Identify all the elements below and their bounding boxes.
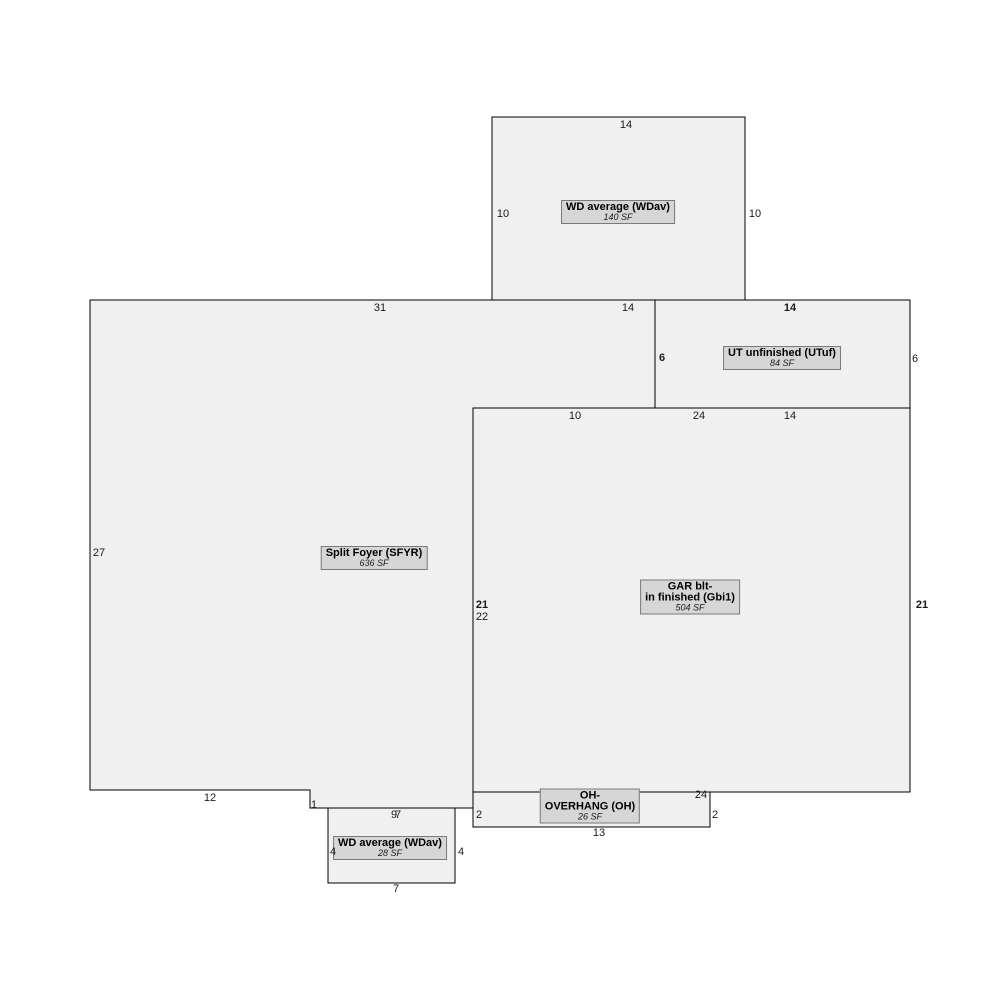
dim-wd-top-top: 14	[620, 119, 632, 131]
dim-gar-top-total: 24	[693, 410, 705, 422]
floorplan-sketch: WD average (WDav) 140 SF UT unfinished (…	[0, 0, 1000, 1000]
region-area: 140 SF	[566, 213, 670, 222]
dim-sfyr-top: 31	[374, 302, 386, 314]
region-area: 636 SF	[326, 559, 423, 568]
dim-wd-bottom-bottom: 7	[393, 883, 399, 895]
dim-gar-top-right: 14	[784, 410, 796, 422]
region-area: 504 SF	[645, 604, 735, 613]
dim-sfyr-bottom-left: 12	[204, 792, 216, 804]
dim-wd-bottom-left: 4	[330, 846, 336, 858]
dim-wd-top-left: 10	[497, 208, 509, 220]
dim-oh-left: 2	[476, 809, 482, 821]
dim-ut-right: 6	[912, 353, 918, 365]
region-label-wd-top: WD average (WDav) 140 SF	[561, 200, 675, 224]
dim-ut-top: 14	[784, 302, 796, 314]
region-label-garage: GAR blt- in finished (Gbi1) 504 SF	[640, 580, 740, 615]
dim-sfyr-notch: 1	[311, 799, 317, 811]
dim-gar-left: 21	[476, 599, 488, 611]
dim-wd-top-right: 10	[749, 208, 761, 220]
region-area: 28 SF	[338, 849, 442, 858]
region-label-overhang: OH- OVERHANG (OH) 26 SF	[540, 789, 640, 824]
dim-oh-bottom: 13	[593, 827, 605, 839]
dim-gar-bottom: 24	[695, 789, 707, 801]
region-label-ut-unfinished: UT unfinished (UTuf) 84 SF	[723, 346, 841, 370]
region-area: 26 SF	[545, 813, 635, 822]
dim-sfyr-left: 27	[93, 547, 105, 559]
region-label-split-foyer: Split Foyer (SFYR) 636 SF	[321, 546, 428, 570]
dim-ut-left: 6	[659, 352, 665, 364]
dim-wd-bottom-right: 4	[458, 846, 464, 858]
dim-sfyr-right: 22	[476, 611, 488, 623]
sketch-outline-svg	[0, 0, 1000, 1000]
region-label-wd-bottom: WD average (WDav) 28 SF	[333, 836, 447, 860]
dim-wd-top-bottom: 14	[622, 302, 634, 314]
dim-wd-bottom-top: 7	[395, 809, 401, 821]
dim-oh-right: 2	[712, 809, 718, 821]
dim-gar-top-left: 10	[569, 410, 581, 422]
dim-gar-right: 21	[916, 599, 928, 611]
region-area: 84 SF	[728, 359, 836, 368]
